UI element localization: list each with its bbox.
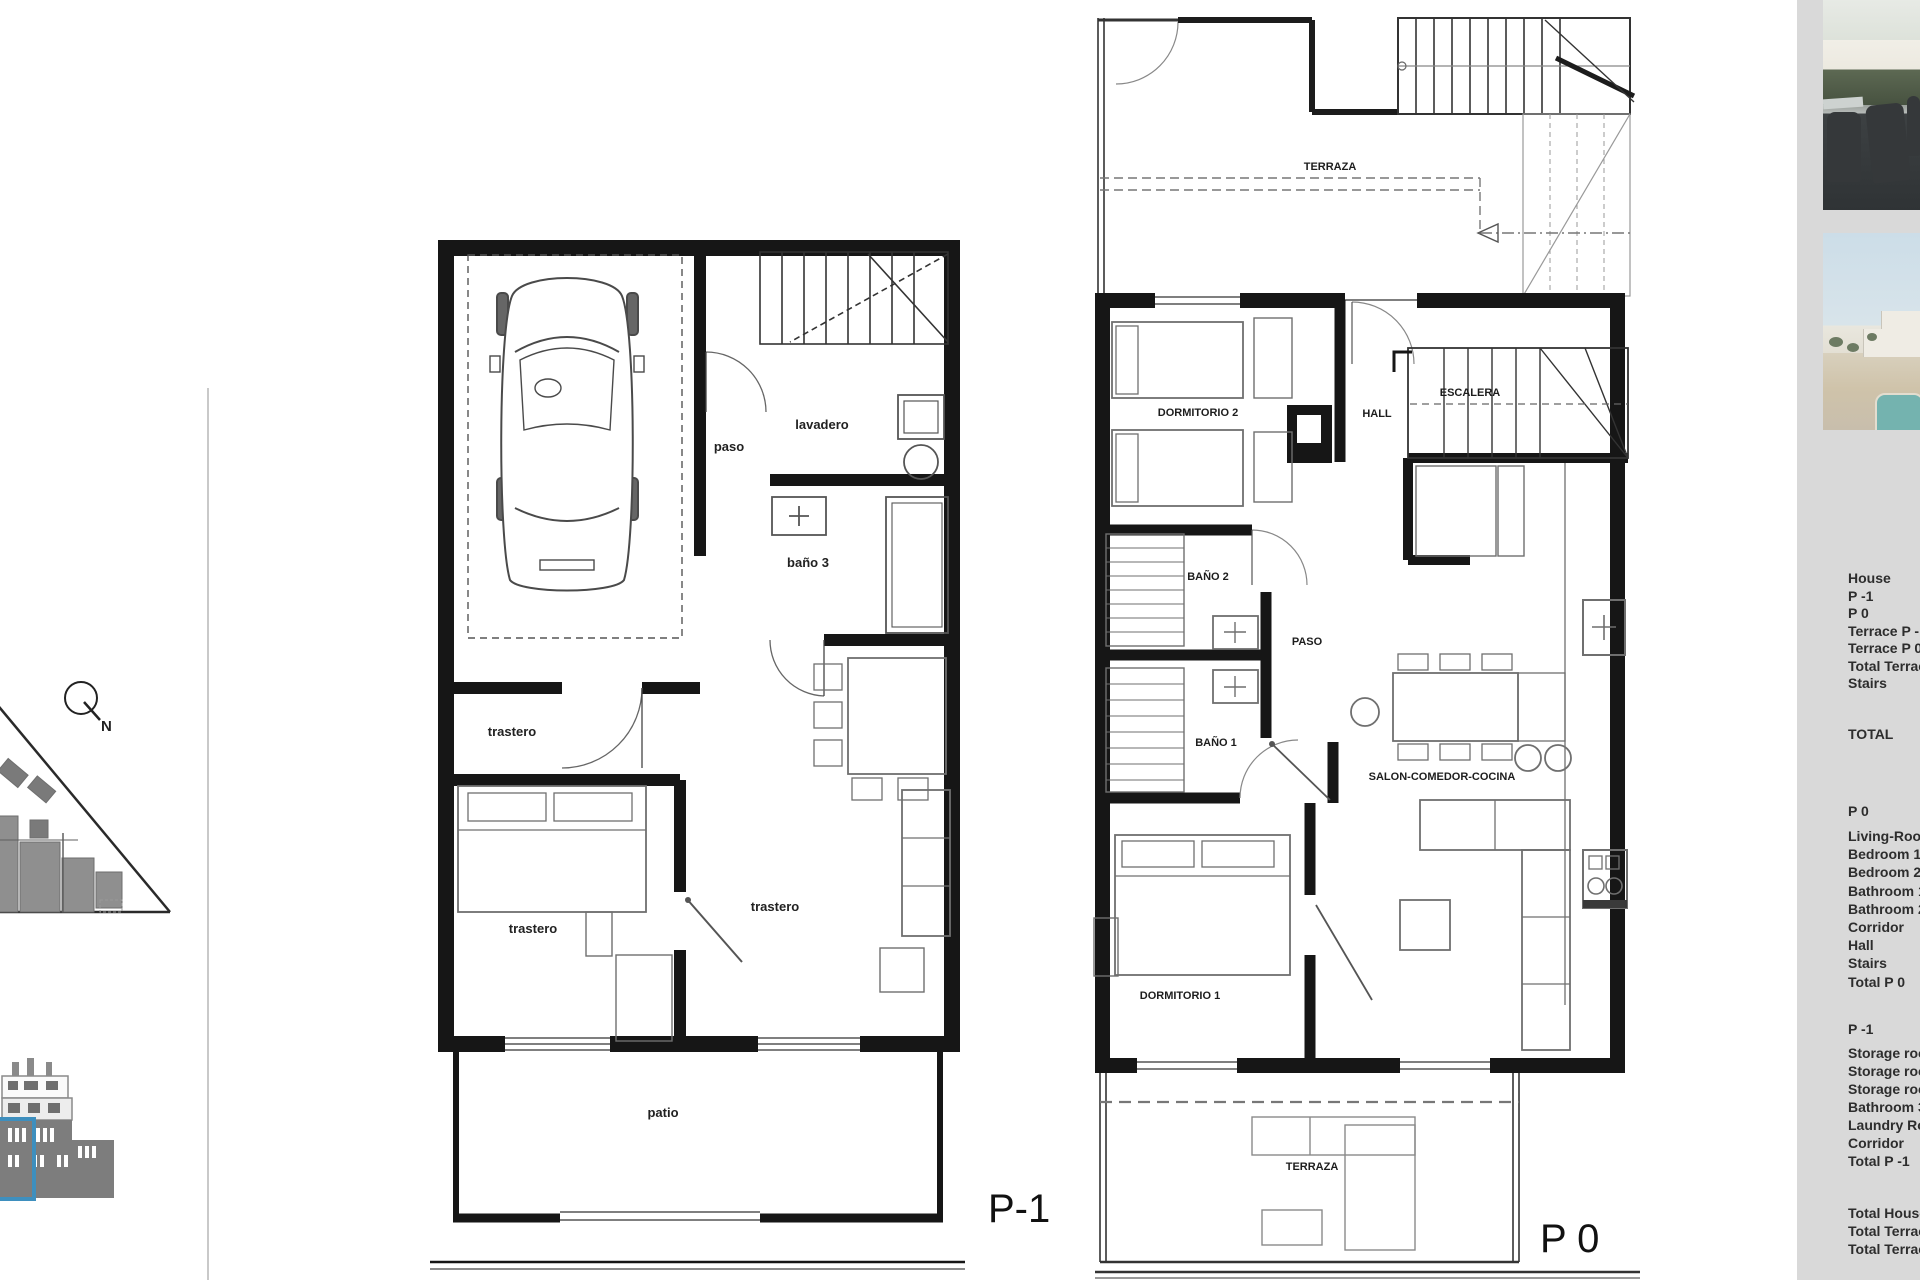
p0-escalera [1394, 348, 1628, 458]
p0-dorm1-bed [1094, 835, 1290, 976]
room-label-terraza-bottom: TERRAZA [1286, 1161, 1339, 1173]
p1-room-list: Storage room Storage room Storage room B… [1848, 1044, 1920, 1170]
plan-p1-title: P-1 [988, 1187, 1050, 1231]
room-label-hall: HALL [1362, 408, 1392, 420]
room-label-bano3: baño 3 [787, 555, 829, 570]
room-row: Total P 0 [1848, 973, 1920, 991]
p0-bano1-fixtures [1106, 668, 1258, 792]
site-plan: N [0, 550, 215, 1030]
room-label-bano1: BAÑO 1 [1195, 736, 1237, 749]
north-label: N [101, 718, 112, 735]
photo-terrace-render [1823, 0, 1920, 210]
room-row: Bedroom 2 [1848, 863, 1920, 881]
elevation-upper-floors [2, 1058, 72, 1120]
photo-pool-render [1823, 233, 1920, 430]
room-label-salon: SALON-COMEDOR-COCINA [1369, 771, 1516, 783]
room-row: Living-Room [1848, 827, 1920, 845]
p1-lavadero-fixtures [898, 395, 944, 479]
summary-row: P 0 [1848, 605, 1920, 623]
room-label-paso: PASO [1292, 636, 1323, 648]
north-arrow-icon: N [65, 682, 112, 735]
room-label-trastero-left: trastero [509, 921, 557, 936]
room-label-bano2: BAÑO 2 [1187, 570, 1229, 583]
car-icon [490, 278, 644, 591]
room-row: Corridor [1848, 918, 1920, 936]
room-row: Storage room [1848, 1062, 1920, 1080]
room-row: Bathroom 3 [1848, 1098, 1920, 1116]
p0-room-list: Living-Room Bedroom 1 Bedroom 2 Bathroom… [1848, 827, 1920, 991]
p0-section-header: P 0 [1848, 803, 1869, 821]
room-row: Corridor [1848, 1134, 1920, 1152]
floor-plan-p0: TERRAZA [1085, 0, 1685, 1280]
room-row: Storage room [1848, 1080, 1920, 1098]
summary-row: P -1 [1848, 588, 1920, 606]
p0-terrace-top [1098, 18, 1634, 296]
area-summary: House P -1 P 0 Terrace P -1 Terrace P 0 … [1848, 570, 1920, 693]
room-label-lavadero: lavadero [795, 417, 849, 432]
room-label-patio: patio [647, 1105, 678, 1120]
total-row: Total Terrace [1848, 1222, 1920, 1240]
summary-row: House [1848, 570, 1920, 588]
p1-bed [458, 786, 646, 912]
summary-row: Terrace P 0 [1848, 640, 1920, 658]
summary-row: Terrace P -1 [1848, 623, 1920, 641]
p1-desk [586, 912, 672, 1041]
p1-stairs [760, 252, 948, 344]
room-row: Storage room [1848, 1044, 1920, 1062]
p0-salon-furniture [1351, 654, 1571, 1050]
total-row: Total Terrace [1848, 1240, 1920, 1258]
total-row: Total House [1848, 1204, 1920, 1222]
p1-sofa [880, 790, 950, 992]
room-label-dormitorio2: DORMITORIO 2 [1158, 407, 1238, 419]
building-elevation [0, 1050, 135, 1230]
room-row: Total P -1 [1848, 1152, 1920, 1170]
room-row: Bathroom 1 [1848, 882, 1920, 900]
p1-dining-set [814, 658, 946, 800]
total-label: TOTAL [1848, 726, 1893, 744]
room-row: Stairs [1848, 954, 1920, 972]
vertical-divider [207, 388, 209, 1280]
p0-bano2-fixtures [1106, 534, 1258, 649]
p1-patio-walls [430, 1052, 965, 1269]
plan-p0-title: P 0 [1540, 1217, 1599, 1261]
room-label-escalera: ESCALERA [1440, 387, 1501, 399]
elevation-lower-mass [0, 1120, 114, 1198]
room-label-trastero-right: trastero [751, 899, 799, 914]
room-row: Laundry Room [1848, 1116, 1920, 1134]
p1-garage [468, 255, 682, 638]
grand-totals: Total House Total Terrace Total Terrace [1848, 1204, 1920, 1258]
room-label-trastero-top: trastero [488, 724, 536, 739]
room-label-terraza-top: TERRAZA [1304, 161, 1357, 173]
room-row: Hall [1848, 936, 1920, 954]
sidebar: House P -1 P 0 Terrace P -1 Terrace P 0 … [1797, 0, 1920, 1280]
summary-row: Stairs [1848, 675, 1920, 693]
room-label-dormitorio1: DORMITORIO 1 [1140, 990, 1220, 1002]
room-row: Bathroom 2 [1848, 900, 1920, 918]
room-row: Bedroom 1 [1848, 845, 1920, 863]
summary-row: Total Terrace [1848, 658, 1920, 676]
room-label-paso: paso [714, 439, 744, 454]
floor-plan-p1: paso lavadero baño 3 trastero trastero t… [420, 190, 1070, 1280]
p1-section-header: P -1 [1848, 1021, 1873, 1039]
